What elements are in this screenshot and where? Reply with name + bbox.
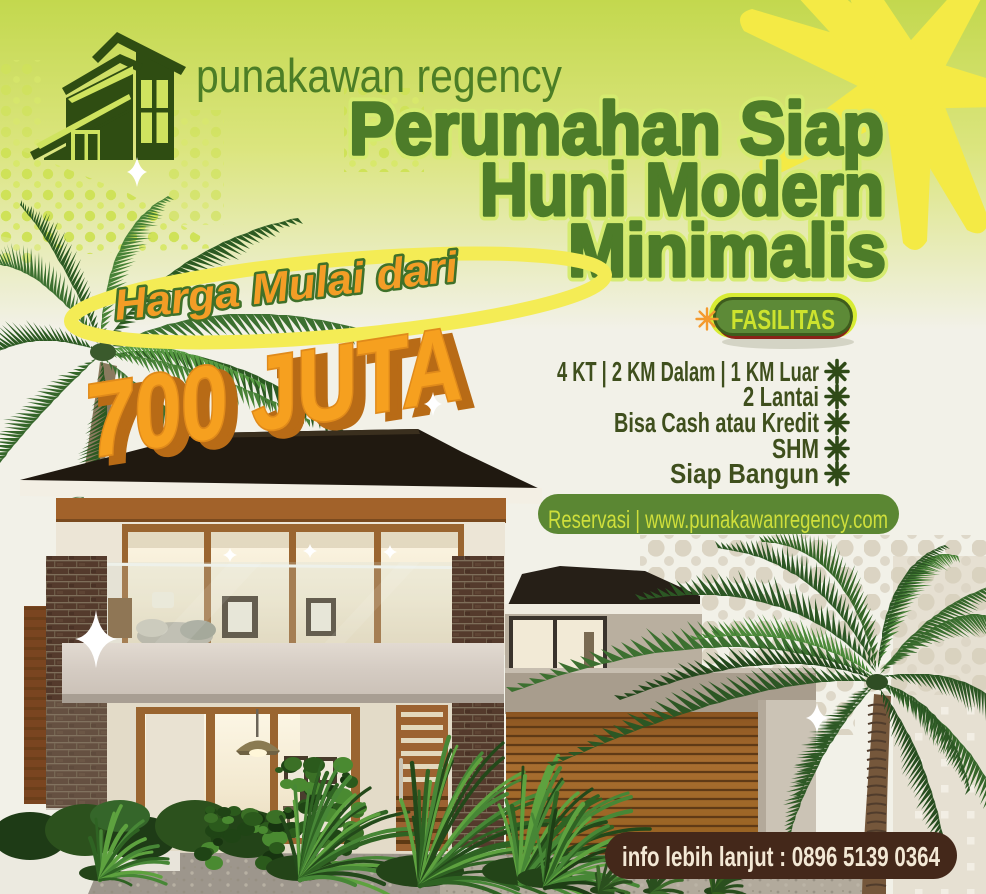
svg-text:FASILITAS: FASILITAS — [731, 304, 835, 335]
svg-text:info lebih lanjut : 0896 5139: info lebih lanjut : 0896 5139 0364 — [622, 841, 940, 872]
svg-text:Siap Bangun: Siap Bangun — [670, 458, 819, 489]
svg-text:Reservasi | www.punakawanregen: Reservasi | www.punakawanregency.com — [548, 506, 888, 534]
svg-text:Minimalis: Minimalis — [568, 209, 886, 292]
